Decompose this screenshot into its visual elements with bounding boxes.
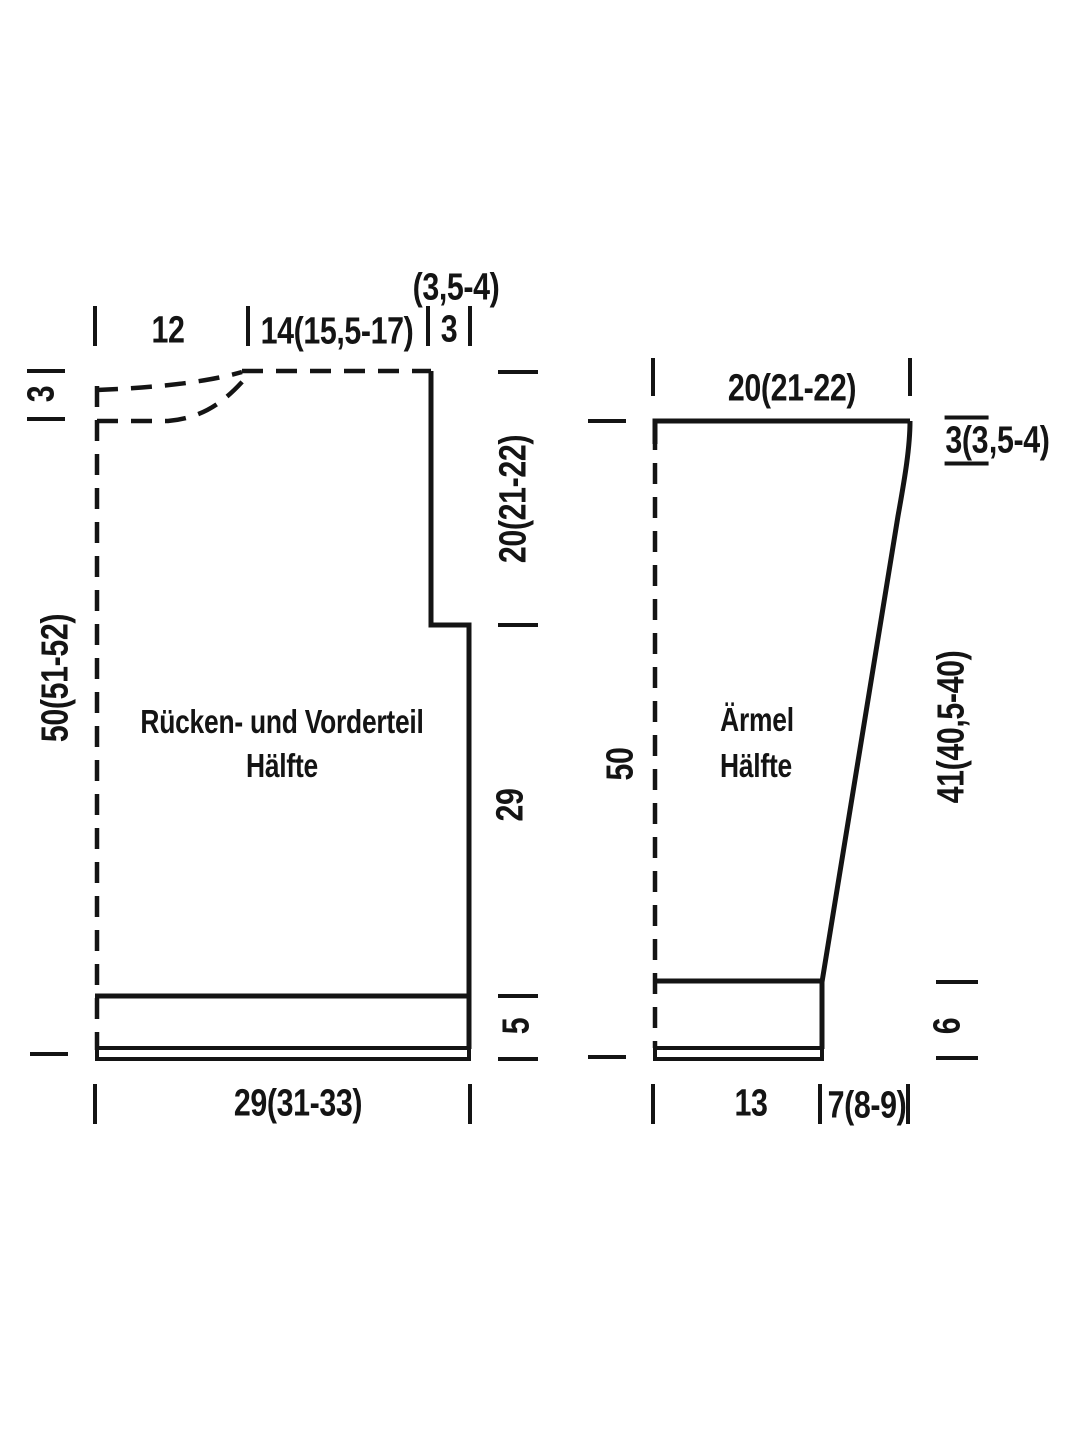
front-back-armhole-side-edge: [431, 371, 469, 1049]
measure-fb-length: 50(51-52): [35, 614, 78, 742]
measure-fb-armhole-depth: 20(21-22): [493, 435, 536, 563]
pattern-schematic: 12 14(15,5-17) (3,5-4) 3 3 50(51-52) 20(…: [0, 0, 1080, 1440]
measure-sl-top-width: 20(21-22): [728, 368, 856, 411]
front-neckline-dashed: [97, 374, 249, 421]
back-neckline-dashed: [97, 372, 242, 390]
measure-sl-cap-edge: 3(3,5-4): [945, 420, 1050, 463]
piece-name-front-back-line2: Hälfte: [246, 747, 318, 785]
piece-name-sleeve-line1: Ärmel: [720, 701, 794, 739]
measure-fb-half-width: 29(31-33): [234, 1083, 362, 1126]
piece-name-front-back-line1: Rücken- und Vorderteil: [140, 703, 423, 741]
measure-sl-extra-width: 7(8-9): [828, 1085, 907, 1128]
measure-fb-neck-depth: 3: [21, 386, 64, 403]
measure-fb-side-seam: 29: [490, 788, 533, 821]
sleeve-bottom-double-edge: [655, 1048, 822, 1059]
measure-fb-neck-width: 12: [151, 310, 184, 353]
sleeve-slanted-seam: [822, 421, 910, 982]
measure-sl-slant: 41(40,5-40): [931, 651, 974, 804]
measure-sl-cuff-width: 13: [734, 1083, 767, 1126]
measure-fb-shoulder-drop-sizes: (3,5-4): [413, 267, 500, 310]
measure-sl-length: 50: [600, 747, 643, 780]
measure-sl-cap-edge-rest: ,5-4): [989, 420, 1050, 462]
front-back-bottom-double-edge: [97, 1048, 469, 1059]
measure-fb-hem-band: 5: [496, 1018, 539, 1035]
sleeve-piece-outline: [655, 421, 910, 1059]
measure-fb-shoulder-width: 14(15,5-17): [261, 311, 414, 354]
measure-sl-cuff-height: 6: [927, 1018, 970, 1035]
measure-fb-shoulder-drop: 3: [441, 309, 458, 352]
piece-name-sleeve-line2: Hälfte: [720, 747, 792, 785]
measure-sl-cap-edge-main: 3(3: [945, 416, 989, 466]
sleeve-top-edge: [655, 421, 910, 444]
